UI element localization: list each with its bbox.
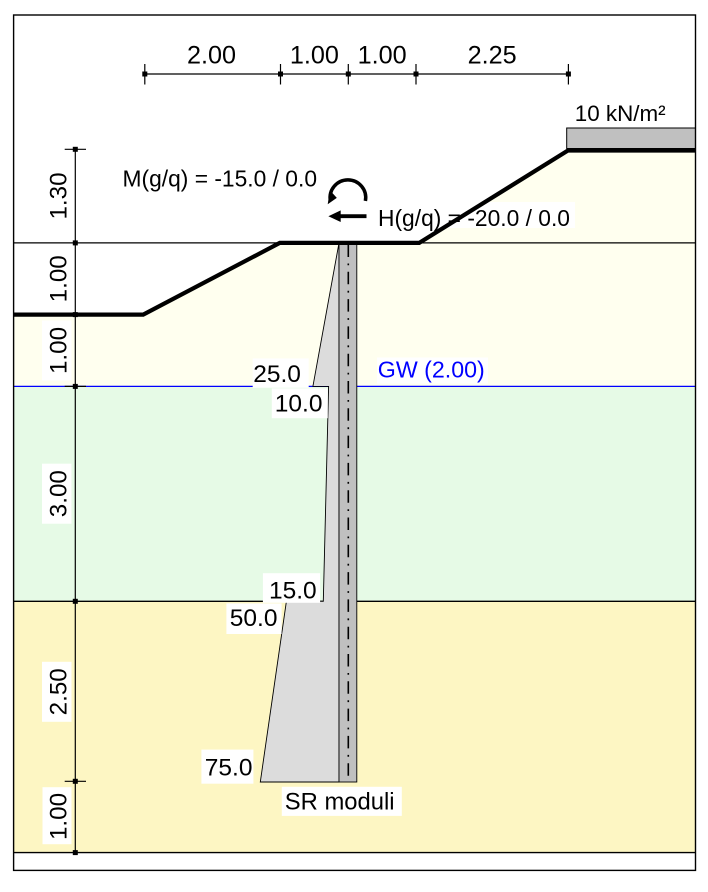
svg-text:GW (2.00): GW (2.00) (378, 356, 485, 382)
svg-text:10 kN/m²: 10 kN/m² (575, 101, 666, 126)
svg-text:1.00: 1.00 (358, 42, 407, 70)
svg-text:2.00: 2.00 (187, 42, 236, 70)
svg-text:1.00: 1.00 (290, 42, 339, 70)
svg-text:25.0: 25.0 (253, 361, 301, 388)
svg-text:15.0: 15.0 (269, 578, 317, 605)
svg-text:10.0: 10.0 (275, 391, 323, 418)
svg-text:M(g/q) = -15.0 / 0.0: M(g/q) = -15.0 / 0.0 (123, 165, 318, 191)
svg-text:75.0: 75.0 (205, 754, 253, 781)
svg-text:2.50: 2.50 (46, 668, 73, 715)
svg-text:1.00: 1.00 (46, 793, 73, 840)
svg-text:3.00: 3.00 (46, 470, 73, 517)
svg-text:50.0: 50.0 (230, 605, 278, 632)
svg-text:2.25: 2.25 (468, 42, 517, 70)
svg-text:1.00: 1.00 (46, 255, 73, 302)
svg-text:1.00: 1.00 (46, 327, 73, 374)
svg-text:SR moduli: SR moduli (285, 789, 395, 816)
svg-text:1.30: 1.30 (46, 172, 73, 219)
